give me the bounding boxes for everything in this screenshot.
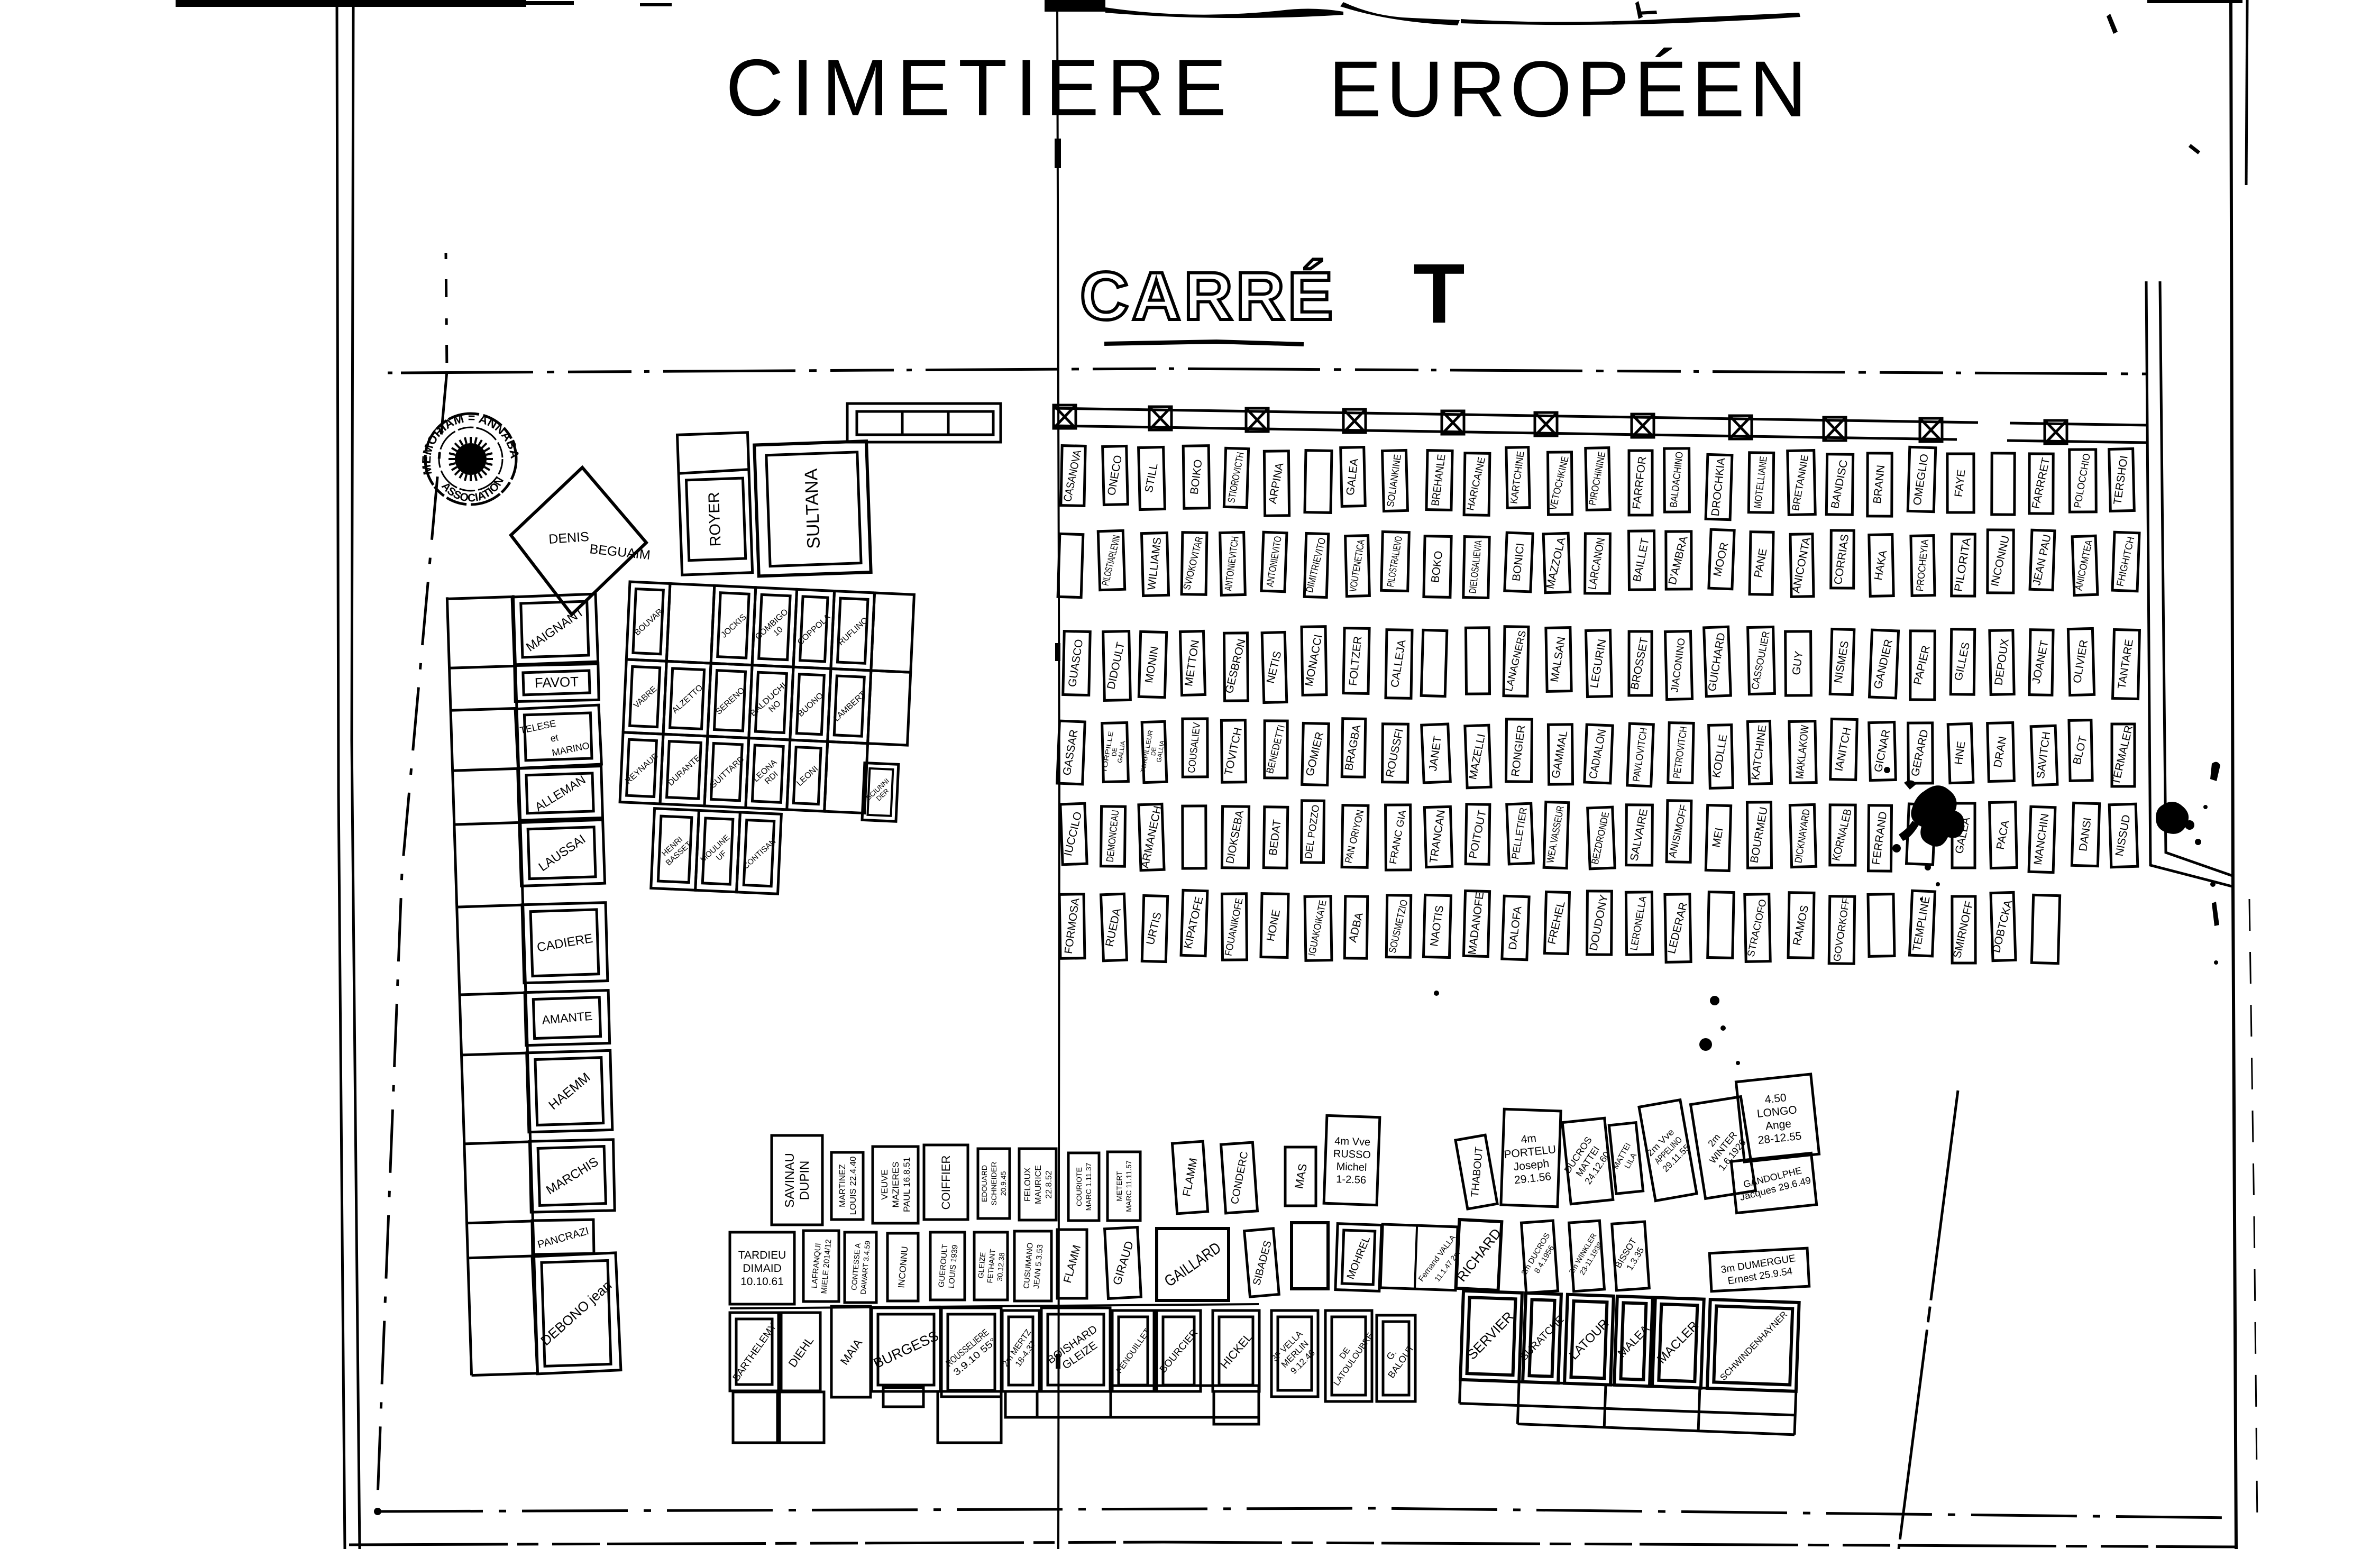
svg-text:CIMETIERE: CIMETIERE [726, 43, 1236, 133]
svg-text:MARC 1.11.37: MARC 1.11.37 [1084, 1162, 1093, 1211]
svg-text:20.9.45: 20.9.45 [999, 1171, 1008, 1196]
svg-text:4m: 4m [1520, 1132, 1536, 1146]
svg-text:SCHNEIDER: SCHNEIDER [990, 1162, 998, 1205]
svg-text:1-2.56: 1-2.56 [1336, 1174, 1366, 1186]
svg-text:COURIOTE: COURIOTE [1075, 1167, 1083, 1206]
svg-text:CARRÉ: CARRÉ [1080, 259, 1333, 334]
svg-text:SAVINAU: SAVINAU [783, 1153, 797, 1208]
svg-text:22.8.52: 22.8.52 [1045, 1170, 1054, 1198]
svg-text:Michel: Michel [1336, 1161, 1367, 1174]
svg-text:10.10.61: 10.10.61 [740, 1276, 784, 1288]
svg-text:FAVOT: FAVOT [534, 674, 579, 691]
svg-text:MARTINEZ: MARTINEZ [838, 1164, 847, 1207]
svg-text:DENIS: DENIS [548, 529, 589, 547]
svg-text:MAURICE: MAURICE [1034, 1165, 1043, 1204]
svg-text:ROYER: ROYER [706, 492, 725, 547]
svg-text:4.50: 4.50 [1764, 1092, 1787, 1106]
svg-text:DUPIN: DUPIN [798, 1161, 812, 1200]
svg-text:T: T [1413, 246, 1465, 341]
svg-text:4m Vve: 4m Vve [1334, 1135, 1371, 1148]
svg-text:DIMAID: DIMAID [743, 1262, 782, 1275]
svg-text:METERT: METERT [1115, 1171, 1123, 1202]
svg-text:RUSSO: RUSSO [1333, 1148, 1371, 1161]
svg-text:COIFFIER: COIFFIER [939, 1156, 953, 1210]
svg-text:EUROPÉEN: EUROPÉEN [1329, 44, 1815, 133]
svg-text:MARC 11.11.57: MARC 11.11.57 [1124, 1160, 1133, 1212]
svg-text:MAZIERES: MAZIERES [891, 1162, 901, 1208]
svg-text:SULTANA: SULTANA [801, 468, 824, 549]
svg-text:EDOUARD: EDOUARD [980, 1165, 988, 1202]
svg-text:FELOUX: FELOUX [1023, 1168, 1032, 1202]
svg-text:VEUVE: VEUVE [880, 1169, 890, 1200]
svg-text:LOUIS 22.4.40: LOUIS 22.4.40 [849, 1156, 858, 1215]
svg-text:PAUL 16.8.51: PAUL 16.8.51 [902, 1157, 912, 1212]
svg-text:TARDIEU: TARDIEU [738, 1249, 786, 1261]
